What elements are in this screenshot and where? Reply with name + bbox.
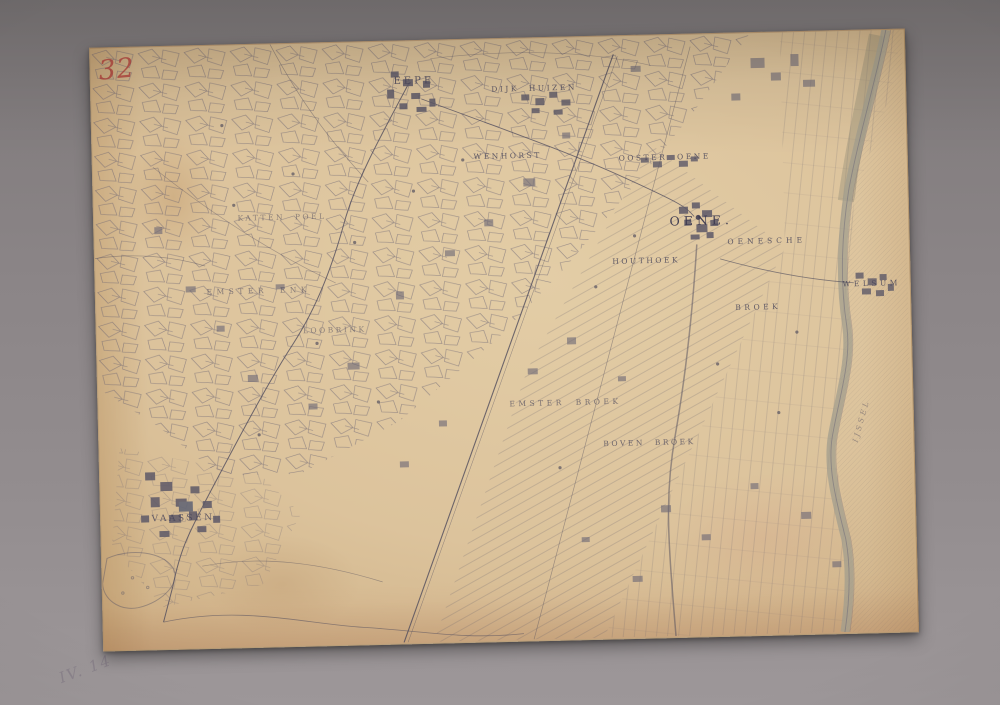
map-label-houthoek: HOUTHOEK: [612, 255, 680, 266]
map-label-oenesche: OENESCHE: [727, 235, 806, 246]
map-label-eepe: EEPE: [393, 75, 434, 87]
map-label-broek: BROEK: [735, 302, 781, 312]
map-label-oene: OENE.: [669, 212, 733, 228]
map-label-loobrink: LOOBRINK: [303, 325, 367, 335]
map-drawing: [90, 30, 916, 650]
map-label-vaassen: VAASSEN: [152, 513, 215, 524]
map-label-welsum: WELSUM: [843, 278, 902, 288]
sheet-number: 32: [97, 52, 136, 86]
pencil-note: IV. 14: [57, 651, 115, 687]
photo-background: IV. 14: [0, 0, 1000, 705]
map-label-wenhorst: WENHORST: [473, 151, 541, 162]
map-sheet: 32 EEPE DIJK HUIZEN WENHORST OOSTER OENE…: [89, 28, 919, 651]
